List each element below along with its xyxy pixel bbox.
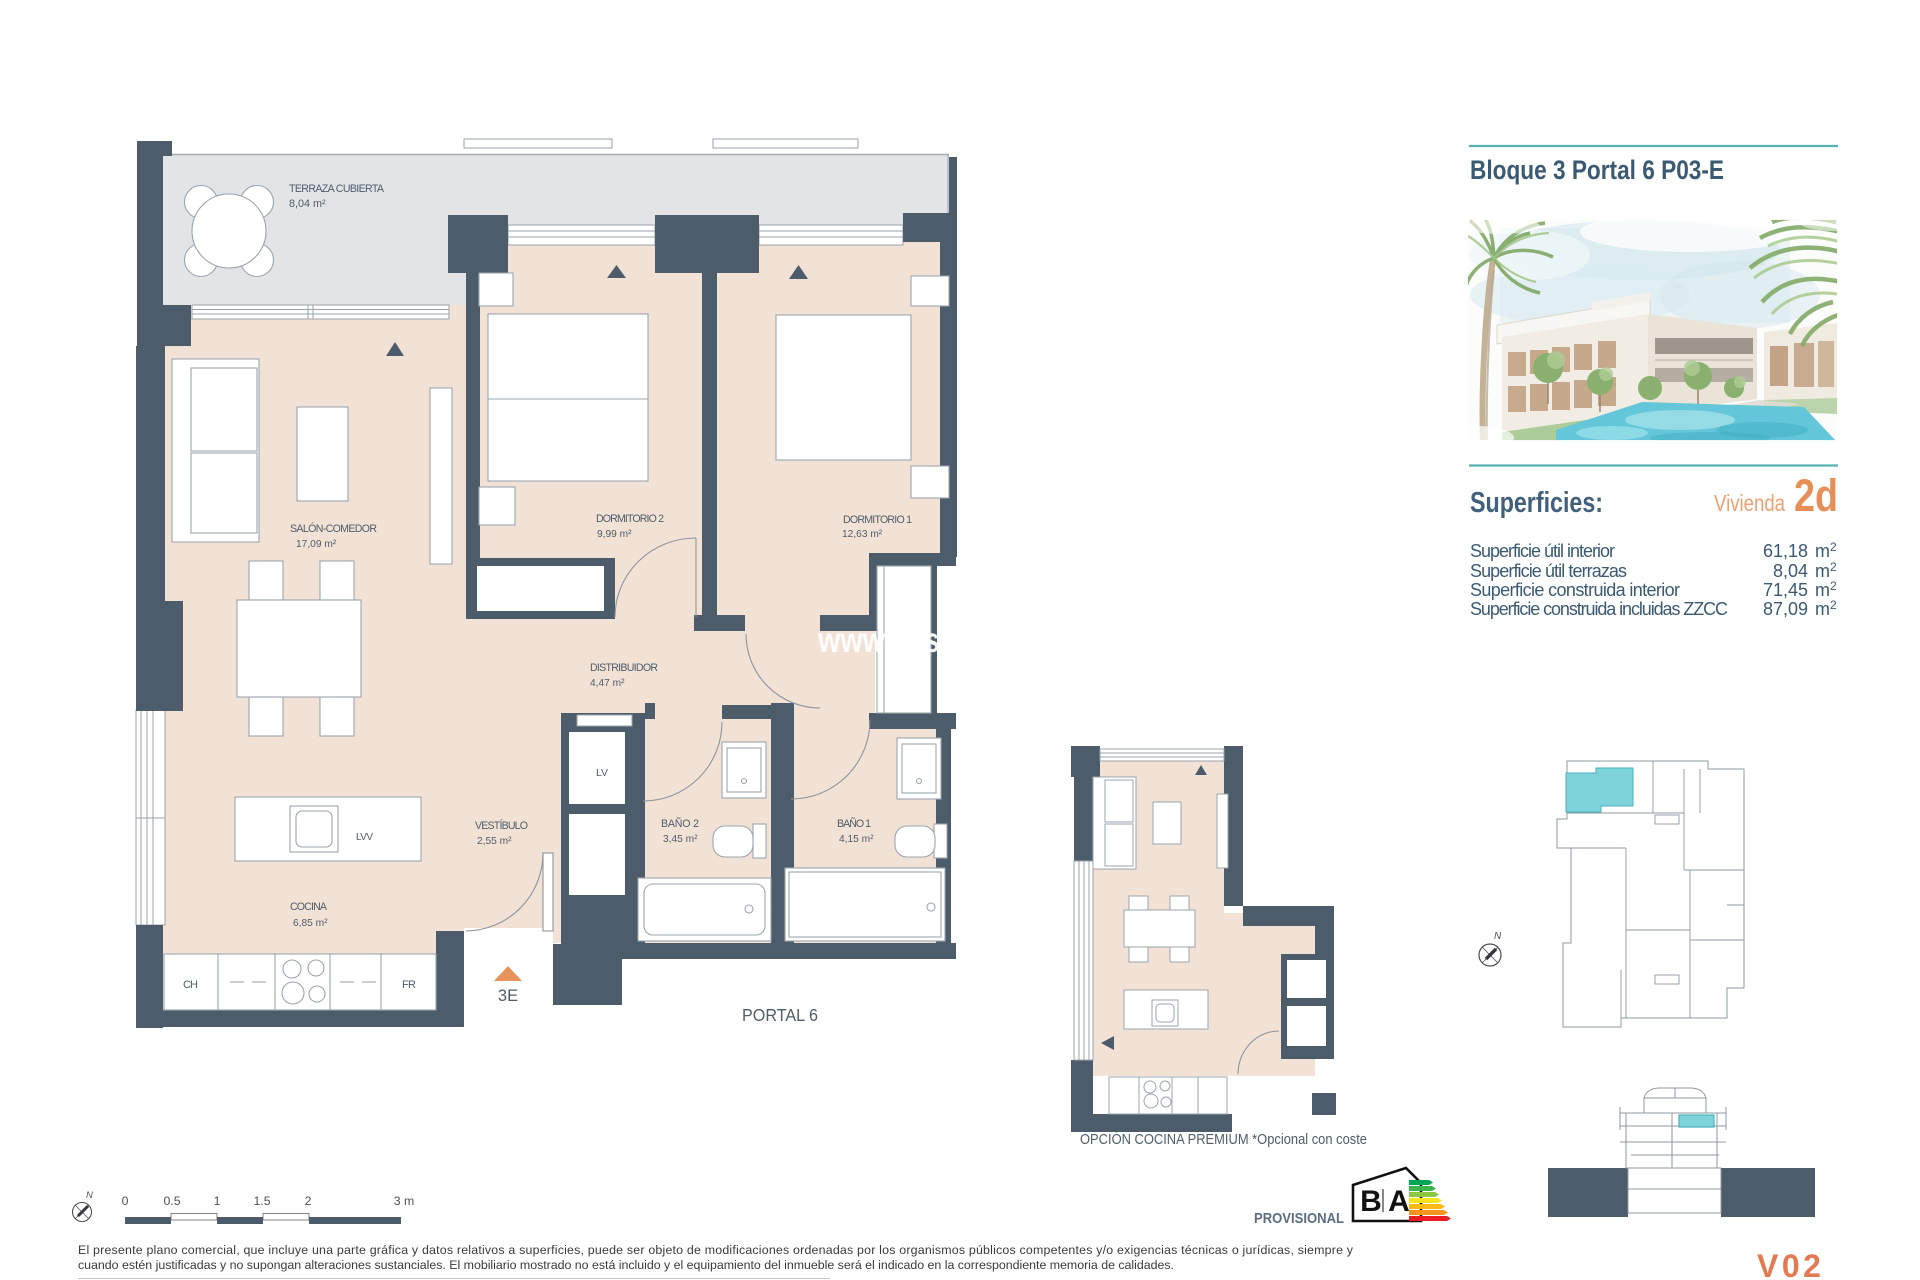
- svg-text:61,18: 61,18: [1763, 541, 1808, 561]
- svg-text:2d: 2d: [1794, 470, 1838, 521]
- svg-text:Bloque 3 Portal 6 P03-E: Bloque 3 Portal 6 P03-E: [1470, 155, 1724, 185]
- svg-text:8,04: 8,04: [1773, 561, 1808, 581]
- svg-text:cuando estén justificadas y no: cuando estén justificadas y no supongan …: [78, 1258, 1174, 1272]
- svg-text:Superficies:: Superficies:: [1470, 487, 1603, 519]
- svg-text:OPCIÓN COCINA PREMIUM *Opciona: OPCIÓN COCINA PREMIUM *Opcional con cost…: [1080, 1131, 1367, 1148]
- svg-text:DORMITORIO 1: DORMITORIO 1: [843, 514, 912, 526]
- svg-text:V02: V02: [1757, 1248, 1824, 1280]
- svg-text:Superficie útil terrazas: Superficie útil terrazas: [1470, 561, 1627, 581]
- svg-text:CH: CH: [183, 979, 198, 991]
- svg-text:El presente plano comercial, q: El presente plano comercial, que incluye…: [78, 1243, 1354, 1257]
- svg-text:Superficie útil interior: Superficie útil interior: [1470, 541, 1615, 561]
- svg-text:2,55 m²: 2,55 m²: [477, 836, 512, 847]
- svg-text:N: N: [86, 1190, 93, 1201]
- svg-text:COCINA: COCINA: [290, 901, 328, 913]
- svg-text:4,15 m²: 4,15 m²: [839, 834, 874, 845]
- svg-text:www: www: [817, 621, 885, 660]
- svg-text:PROVISIONAL: PROVISIONAL: [1254, 1210, 1344, 1227]
- svg-text:Vivienda: Vivienda: [1714, 490, 1785, 516]
- svg-text:A: A: [1388, 1185, 1410, 1218]
- svg-text:SALÓN-COMEDOR: SALÓN-COMEDOR: [290, 522, 377, 535]
- svg-text:12,63 m²: 12,63 m²: [842, 529, 883, 540]
- svg-text:FR: FR: [402, 979, 416, 991]
- svg-text:Superficie construida incluida: Superficie construida incluidas ZZCC: [1470, 599, 1728, 619]
- svg-text:3E: 3E: [498, 987, 518, 1005]
- svg-text:B: B: [1360, 1185, 1382, 1218]
- svg-text:LVV: LVV: [356, 832, 373, 843]
- svg-text:8,04 m²: 8,04 m²: [289, 198, 326, 210]
- svg-text:BAÑO 1: BAÑO 1: [837, 817, 871, 830]
- svg-text:s: s: [926, 621, 939, 660]
- svg-text:2: 2: [305, 1194, 312, 1208]
- svg-text:TERRAZA CUBIERTA: TERRAZA CUBIERTA: [289, 183, 385, 195]
- svg-text:0.5: 0.5: [163, 1194, 180, 1208]
- svg-text:3,45 m²: 3,45 m²: [663, 834, 698, 845]
- svg-text:71,45: 71,45: [1763, 580, 1808, 600]
- svg-text:17,09 m²: 17,09 m²: [296, 539, 337, 550]
- svg-text:DISTRIBUIDOR: DISTRIBUIDOR: [590, 662, 658, 674]
- svg-text:PORTAL 6: PORTAL 6: [742, 1005, 818, 1025]
- svg-text:VESTÍBULO: VESTÍBULO: [475, 819, 528, 832]
- svg-text:0: 0: [122, 1194, 129, 1208]
- svg-text:87,09: 87,09: [1763, 599, 1808, 619]
- svg-text:BAÑO 2: BAÑO 2: [661, 817, 699, 830]
- svg-text:4,47 m²: 4,47 m²: [590, 678, 625, 689]
- svg-text:3 m: 3 m: [394, 1194, 415, 1208]
- svg-text:1.5: 1.5: [253, 1194, 270, 1208]
- svg-text:N: N: [1494, 931, 1502, 942]
- svg-text:1: 1: [214, 1194, 221, 1208]
- svg-text:DORMITORIO 2: DORMITORIO 2: [596, 513, 664, 525]
- svg-text:6,85 m²: 6,85 m²: [293, 918, 328, 929]
- svg-text:Superficie construida interior: Superficie construida interior: [1470, 580, 1680, 600]
- svg-text:9,99 m²: 9,99 m²: [597, 529, 632, 540]
- svg-text:LV: LV: [596, 767, 608, 779]
